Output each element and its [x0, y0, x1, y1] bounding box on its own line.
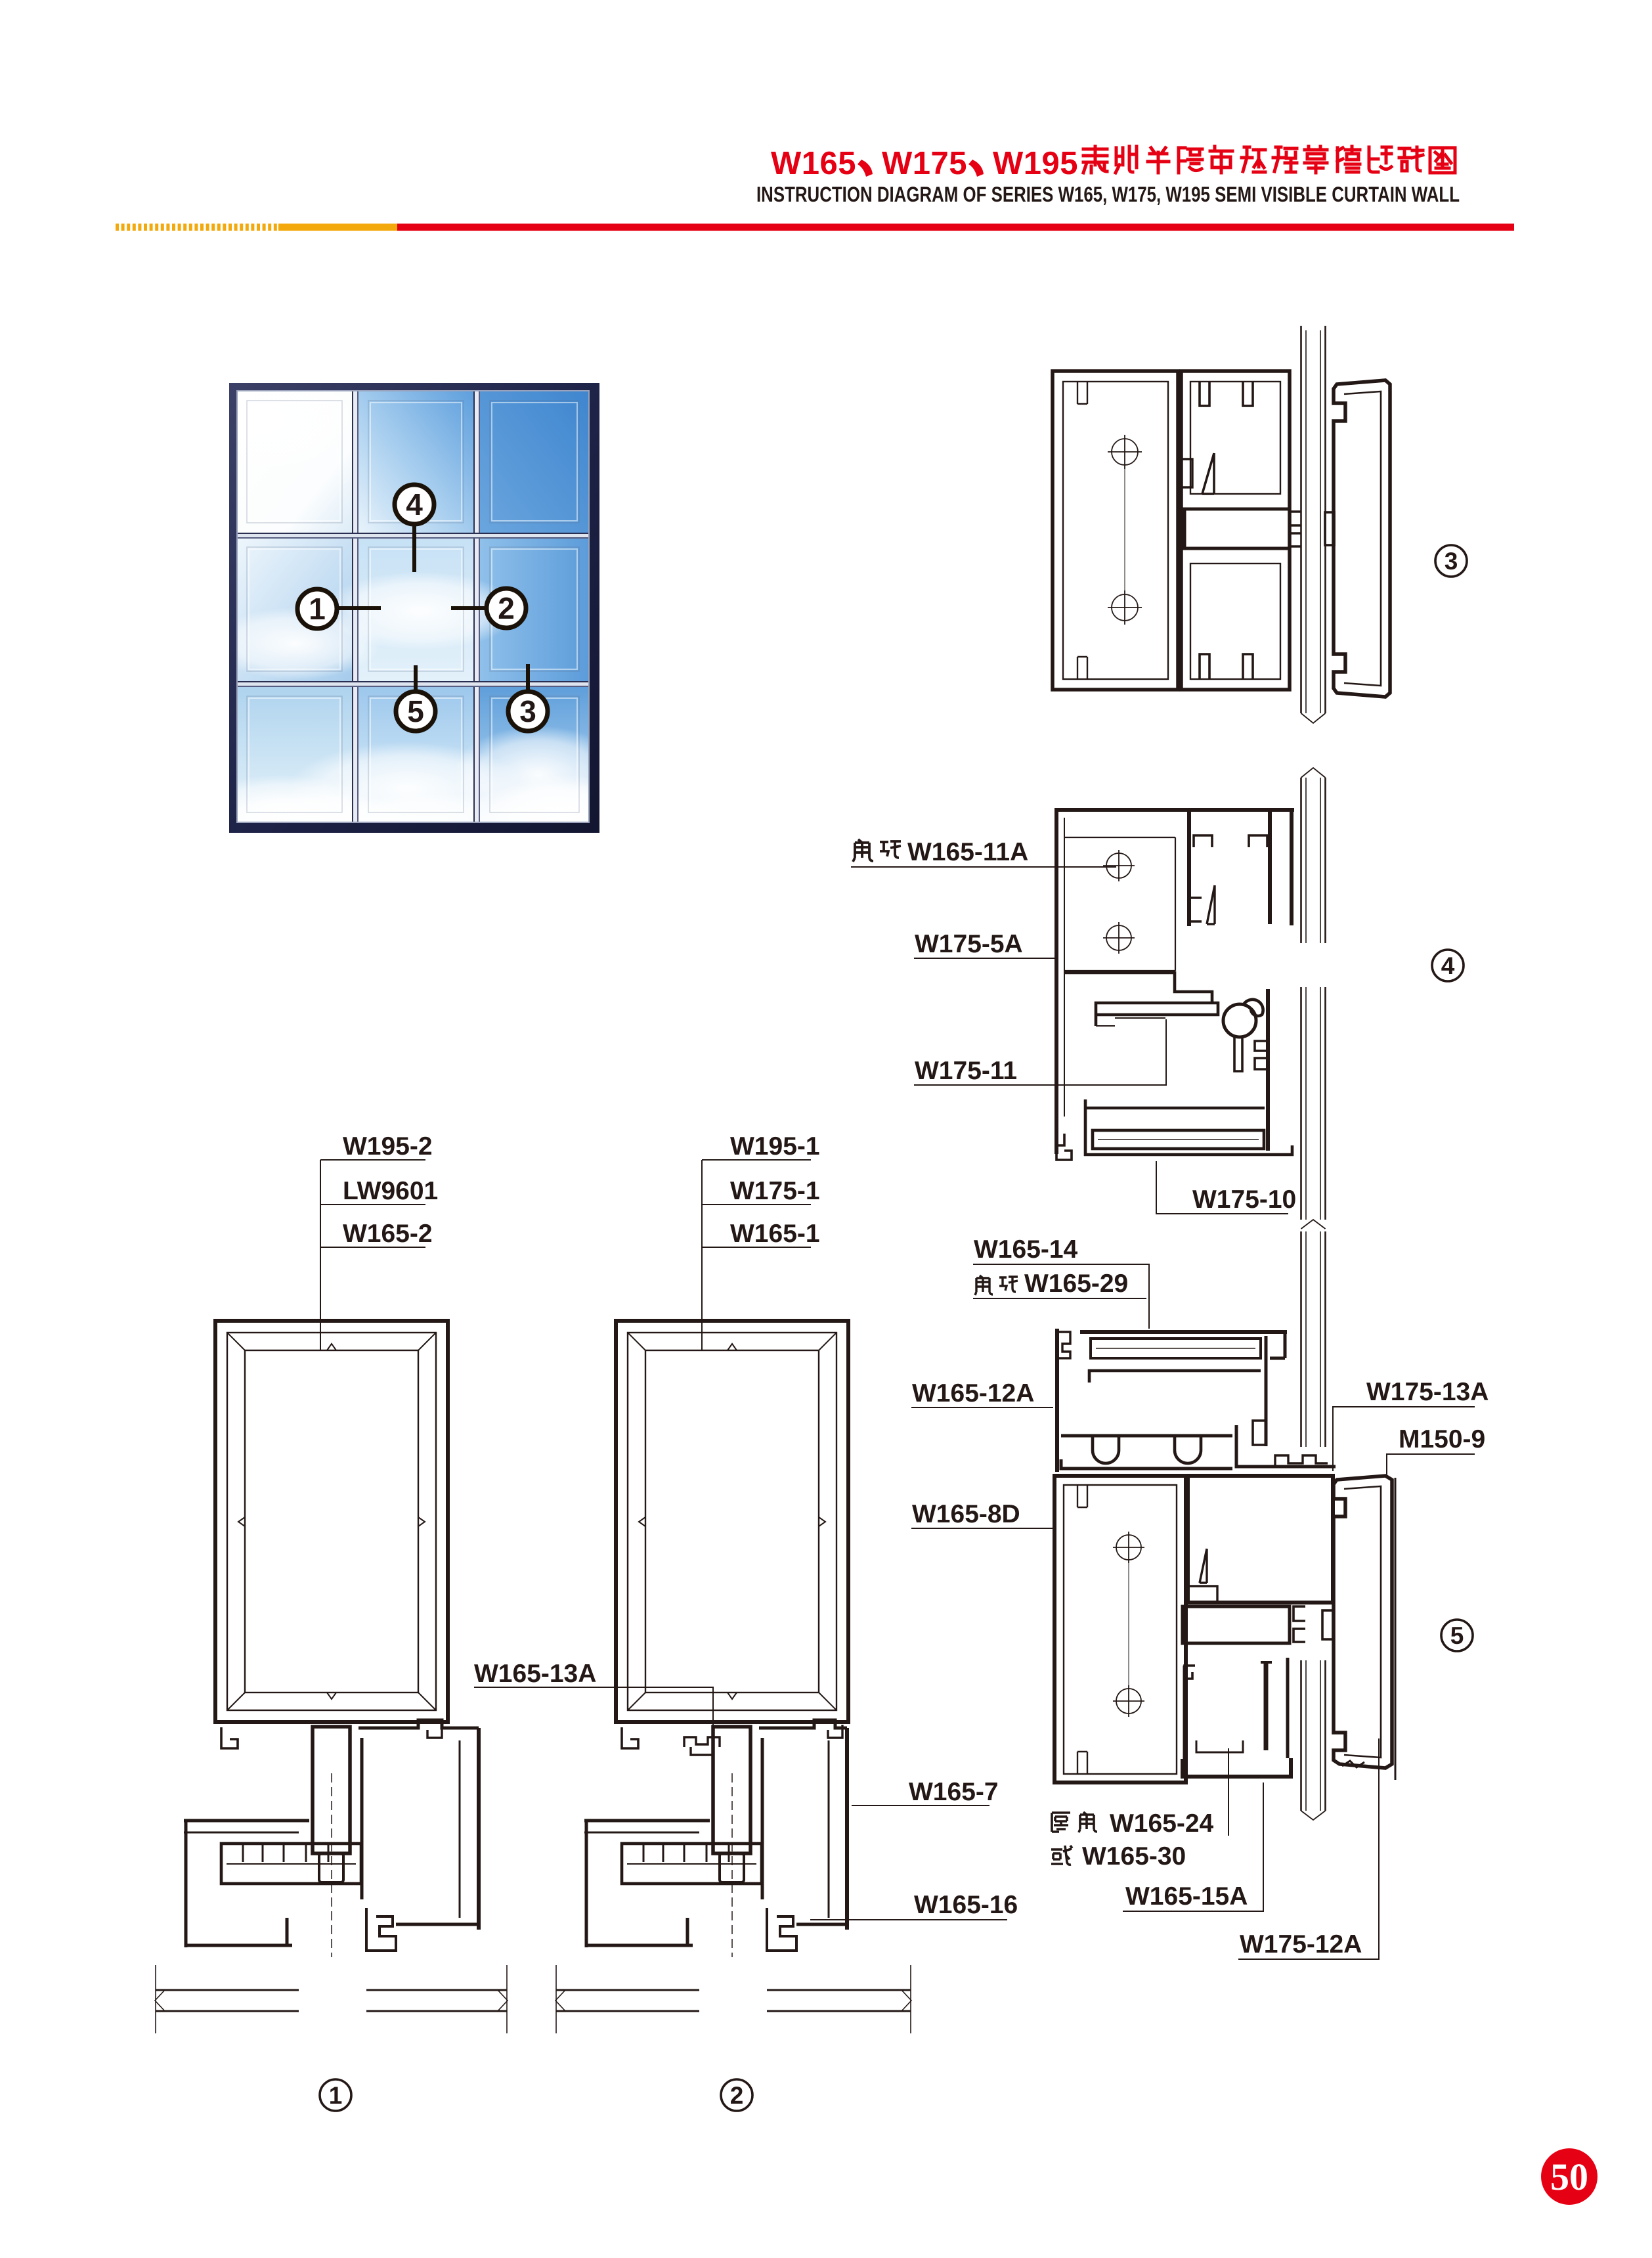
svg-text:W165-12A: W165-12A	[912, 1379, 1034, 1407]
svg-text:W175-11: W175-11	[915, 1057, 1017, 1085]
svg-text:W165-7: W165-7	[909, 1778, 999, 1806]
svg-text:W175-5A: W175-5A	[915, 930, 1023, 958]
svg-text:50: 50	[1550, 2156, 1588, 2198]
svg-text:W195-2: W195-2	[343, 1132, 433, 1161]
svg-text:1: 1	[309, 592, 326, 626]
svg-text:W195-1: W195-1	[730, 1132, 820, 1161]
svg-text:W175-12A: W175-12A	[1240, 1930, 1362, 1959]
svg-text:M150-9: M150-9	[1399, 1425, 1485, 1453]
svg-text:W165-16: W165-16	[914, 1891, 1018, 1919]
svg-text:W175-13A: W175-13A	[1366, 1378, 1489, 1406]
svg-text:W165-13A: W165-13A	[474, 1660, 596, 1688]
svg-text:4: 4	[406, 487, 423, 521]
svg-text:W165-2: W165-2	[343, 1220, 433, 1248]
svg-text:W165-1: W165-1	[730, 1220, 820, 1248]
svg-text:LW9601: LW9601	[343, 1177, 438, 1205]
svg-text:W165-11A: W165-11A	[907, 838, 1028, 866]
svg-text:3: 3	[1445, 548, 1458, 575]
svg-text:W175: W175	[882, 146, 967, 181]
svg-text:2: 2	[730, 2082, 744, 2109]
svg-text:W165-24: W165-24	[1110, 1809, 1214, 1838]
svg-text:W165-8D: W165-8D	[912, 1500, 1020, 1528]
svg-text:4: 4	[1441, 952, 1455, 979]
svg-text:3: 3	[519, 694, 536, 728]
svg-text:W165-29: W165-29	[1024, 1270, 1128, 1298]
svg-text:W165: W165	[771, 146, 856, 181]
svg-text:W165-14: W165-14	[974, 1235, 1078, 1264]
svg-text:W195: W195	[993, 146, 1078, 181]
svg-text:W175-1: W175-1	[730, 1177, 820, 1205]
svg-text:5: 5	[1450, 1622, 1464, 1649]
svg-text:1: 1	[329, 2082, 343, 2109]
svg-text:W165-30: W165-30	[1082, 1842, 1186, 1871]
svg-text:2: 2	[498, 591, 515, 625]
svg-text:W165-15A: W165-15A	[1125, 1882, 1248, 1911]
svg-text:W175-10: W175-10	[1192, 1185, 1296, 1214]
svg-text:INSTRUCTION DIAGRAM OF SERIES: INSTRUCTION DIAGRAM OF SERIES W165, W175…	[756, 183, 1460, 206]
svg-text:5: 5	[407, 694, 424, 728]
